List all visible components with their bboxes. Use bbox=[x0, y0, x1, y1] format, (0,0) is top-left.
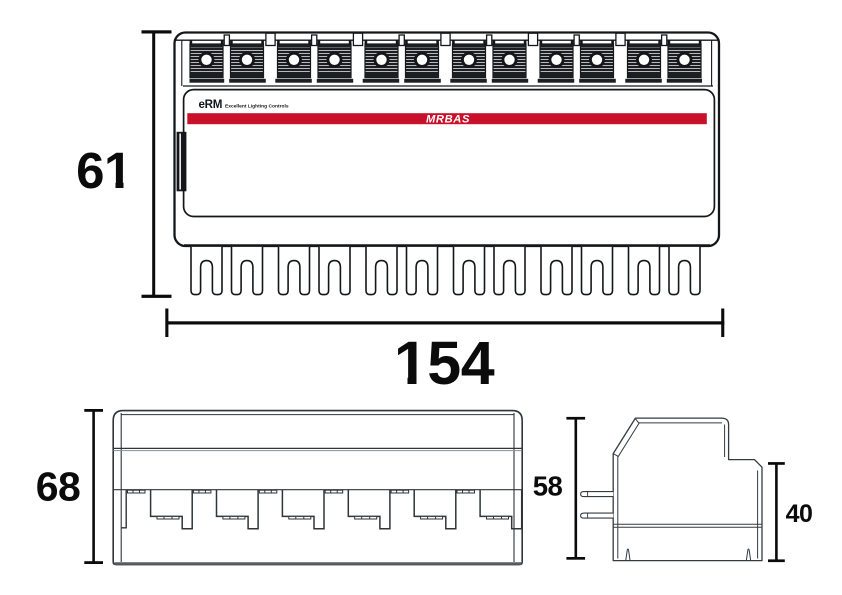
svg-text:58: 58 bbox=[533, 471, 563, 502]
svg-text:154: 154 bbox=[394, 329, 495, 397]
svg-text:61: 61 bbox=[76, 142, 132, 199]
svg-text:68: 68 bbox=[36, 463, 81, 509]
svg-text:Excellent Lighting Controls: Excellent Lighting Controls bbox=[225, 104, 289, 110]
svg-text:40: 40 bbox=[786, 500, 813, 528]
svg-text:MRBAS: MRBAS bbox=[426, 114, 470, 126]
svg-text:eRM: eRM bbox=[199, 98, 223, 111]
